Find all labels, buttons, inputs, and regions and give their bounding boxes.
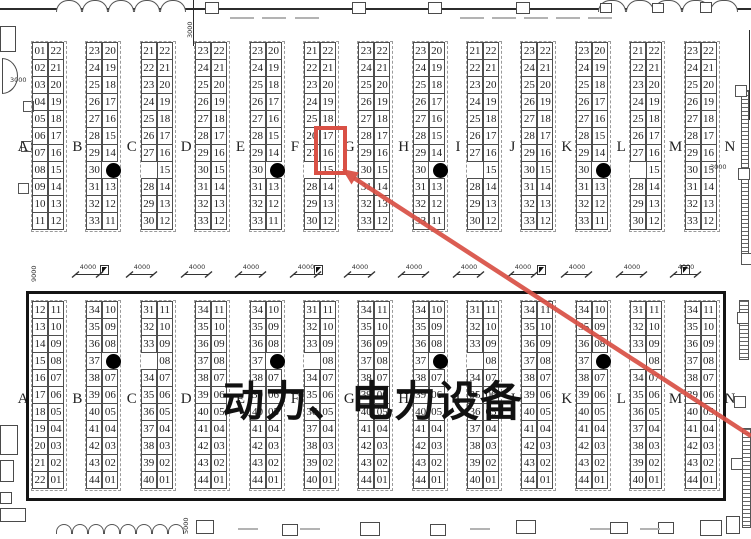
booth-cell: 06 [537, 386, 553, 404]
booth-cell: 23 [195, 42, 211, 60]
booth-cell: 11 [32, 212, 48, 230]
booth-cell: 19 [537, 93, 553, 111]
booth-cell: 06 [48, 386, 64, 404]
booth-cell: 16 [701, 144, 717, 162]
booth-cell: 19 [102, 59, 118, 77]
booth-cell: 19 [32, 420, 48, 438]
booth-cell: 37 [86, 352, 102, 370]
booth-cell: 09 [102, 318, 118, 336]
booth-cell: 19 [211, 93, 227, 111]
booth-cell: 21 [304, 42, 320, 60]
booth-cell: 09 [374, 335, 390, 353]
dimension-label: 3000 [710, 163, 727, 171]
door-arch [134, 0, 160, 12]
booth-cell: 34 [358, 301, 374, 319]
booth-cell: 23 [358, 42, 374, 60]
booth-cell: 31 [304, 301, 320, 319]
booth-cell: 20 [483, 76, 499, 94]
booth-cell: 24 [685, 59, 701, 77]
booth-cell: 43 [250, 454, 266, 472]
door-arch [72, 524, 88, 534]
booth-cell: 20 [592, 42, 608, 60]
wall-detail [0, 492, 12, 504]
booth-cell: 03 [32, 76, 48, 94]
booth-cell: 05 [102, 403, 118, 421]
booth-cell [141, 352, 157, 370]
booth-cell: 15 [48, 161, 64, 179]
booth-cell: 15 [537, 161, 553, 179]
booth-cell [467, 161, 483, 179]
booth-cell: 37 [630, 420, 646, 438]
booth-cell: 28 [576, 127, 592, 145]
booth-cell: 25 [358, 76, 374, 94]
booth-cell: 06 [102, 386, 118, 404]
booth-cell: 40 [195, 403, 211, 421]
booth-cell: 01 [483, 471, 499, 489]
booth-cell: 20 [48, 76, 64, 94]
booth-cell: 42 [413, 437, 429, 455]
door-icon [100, 265, 109, 275]
booth-cell: 18 [48, 110, 64, 128]
booth-cell: 35 [521, 318, 537, 336]
booth-cell: 31 [195, 178, 211, 196]
booth-cell: 17 [483, 127, 499, 145]
wall-detail [0, 508, 26, 522]
booth-cell: 01 [320, 471, 336, 489]
booth-cell: 39 [304, 454, 320, 472]
booth-cell: 10 [646, 318, 662, 336]
booth-cell: 31 [576, 178, 592, 196]
booth-cell: 16 [266, 110, 282, 128]
booth-cell [429, 161, 445, 179]
booth-cell: 37 [141, 420, 157, 438]
highlighted-booth-box [314, 126, 347, 175]
booth-cell: 24 [576, 59, 592, 77]
booth-cell: 19 [483, 93, 499, 111]
booth-cell: 40 [576, 403, 592, 421]
booth-cell: 22 [374, 42, 390, 60]
booth-cell: 20 [374, 76, 390, 94]
booth-cell: 34 [250, 301, 266, 319]
row-letter-n: N [725, 392, 736, 407]
booth-cell: 17 [592, 93, 608, 111]
booth-cell: 21 [157, 59, 173, 77]
wall-detail [295, 17, 319, 19]
booth-cell: 13 [646, 195, 662, 213]
booth-cell: 10 [157, 318, 173, 336]
booth-cell: 21 [211, 59, 227, 77]
booth-cell: 28 [358, 127, 374, 145]
booth-cell: 09 [537, 335, 553, 353]
door-arch [56, 524, 72, 534]
booth-cell: 01 [592, 471, 608, 489]
booth-cell: 30 [358, 161, 374, 179]
booth-cell: 27 [685, 110, 701, 128]
booth-cell: 13 [32, 318, 48, 336]
wall-detail [460, 17, 484, 19]
booth-cell: 02 [592, 454, 608, 472]
booth-cell: 30 [250, 161, 266, 179]
booth-cell: 23 [467, 76, 483, 94]
booth-cell: 22 [537, 42, 553, 60]
ramp-mark: 4000 [451, 262, 487, 279]
booth-cell: 29 [304, 195, 320, 213]
wall-detail [516, 520, 536, 534]
booth-cell: 36 [195, 335, 211, 353]
booth-cell: 21 [320, 59, 336, 77]
row-letter-b: B [72, 392, 82, 407]
booth-cell: 41 [86, 420, 102, 438]
booth-cell: 24 [467, 93, 483, 111]
wall-detail [737, 312, 749, 324]
booth-cell: 24 [304, 93, 320, 111]
booth-column: 0122022103200419051806170716081509141013… [33, 43, 65, 230]
booth-cell: 27 [413, 110, 429, 128]
booth-cell: 25 [141, 110, 157, 128]
svg-text:4000: 4000 [188, 263, 205, 271]
row-letter-i: I [456, 140, 461, 155]
booth-cell: 18 [701, 110, 717, 128]
booth-cell: 22 [32, 471, 48, 489]
booth-cell: 31 [467, 301, 483, 319]
booth-cell: 10 [211, 318, 227, 336]
booth-cell: 12 [320, 212, 336, 230]
wall-detail [360, 522, 380, 536]
booth-column: 2322242125202619271828172916301531143213… [522, 43, 554, 230]
booth-cell: 18 [102, 76, 118, 94]
booth-cell: 23 [413, 42, 429, 60]
booth-cell: 29 [195, 144, 211, 162]
aisle-dot-marker [433, 163, 448, 178]
booth-cell [592, 352, 608, 370]
booth-cell: 30 [195, 161, 211, 179]
wall-detail [230, 17, 254, 19]
ramp-mark: 4000 [505, 262, 541, 279]
booth-cell: 20 [429, 42, 445, 60]
booth-cell: 14 [102, 144, 118, 162]
booth-cell: 07 [646, 369, 662, 387]
booth-cell: 24 [521, 59, 537, 77]
booth-cell: 31 [630, 301, 646, 319]
booth-cell: 09 [701, 335, 717, 353]
booth-cell: 43 [358, 454, 374, 472]
booth-cell: 20 [537, 76, 553, 94]
booth-cell: 21 [467, 42, 483, 60]
booth-cell: 10 [48, 318, 64, 336]
booth-cell: 01 [701, 471, 717, 489]
booth-cell: 28 [685, 127, 701, 145]
booth-cell: 33 [86, 212, 102, 230]
booth-cell: 28 [467, 178, 483, 196]
wall-detail [726, 516, 740, 534]
booth-cell: 06 [32, 127, 48, 145]
booth-cell: 42 [358, 437, 374, 455]
booth-cell: 16 [592, 110, 608, 128]
booth-cell: 36 [358, 335, 374, 353]
booth-cell [102, 352, 118, 370]
booth-cell: 25 [86, 76, 102, 94]
booth-cell: 14 [211, 178, 227, 196]
booth-cell: 44 [521, 471, 537, 489]
booth-cell: 22 [483, 42, 499, 60]
booth-cell: 43 [86, 454, 102, 472]
booth-cell: 03 [429, 437, 445, 455]
booth-cell: 34 [630, 369, 646, 387]
booth-cell: 05 [537, 403, 553, 421]
booth-cell: 17 [211, 127, 227, 145]
booth-cell: 28 [250, 127, 266, 145]
booth-cell: 33 [521, 212, 537, 230]
svg-text:4000: 4000 [80, 263, 97, 271]
booth-cell: 06 [701, 386, 717, 404]
row-letter-d: D [181, 392, 192, 407]
ramp-mark: 4000 [233, 262, 269, 279]
booth-cell: 31 [250, 178, 266, 196]
booth-cell: 44 [685, 471, 701, 489]
svg-text:4000: 4000 [243, 263, 260, 271]
booth-cell: 26 [521, 93, 537, 111]
booth-cell: 09 [266, 318, 282, 336]
booth-cell: 19 [646, 93, 662, 111]
svg-text:4000: 4000 [460, 263, 477, 271]
door-arch [710, 0, 738, 12]
aisle-dot-marker [596, 163, 611, 178]
booth-cell: 04 [102, 420, 118, 438]
booth-column: 1211131014091508160717061805190420032102… [33, 302, 65, 489]
booth-cell: 22 [141, 59, 157, 77]
booth-cell: 29 [521, 144, 537, 162]
booth-cell: 23 [304, 76, 320, 94]
booth-cell: 27 [630, 144, 646, 162]
booth-cell: 01 [32, 42, 48, 60]
booth-cell: 40 [86, 403, 102, 421]
booth-cell: 22 [157, 42, 173, 60]
row-letter-c: C [127, 392, 137, 407]
booth-cell: 07 [32, 144, 48, 162]
booth-cell: 38 [195, 369, 211, 387]
booth-cell: 18 [211, 110, 227, 128]
booth-cell [592, 161, 608, 179]
booth-cell: 10 [32, 195, 48, 213]
wall-detail [742, 428, 751, 528]
wall-detail [749, 30, 750, 120]
booth-cell: 08 [701, 352, 717, 370]
booth-cell: 35 [141, 386, 157, 404]
booth-cell: 40 [521, 403, 537, 421]
booth-cell: 33 [467, 335, 483, 353]
wall-detail [300, 528, 320, 530]
booth-cell: 13 [429, 178, 445, 196]
booth-cell: 11 [320, 301, 336, 319]
booth-cell: 26 [685, 93, 701, 111]
booth-cell: 31 [86, 178, 102, 196]
booth-cell: 15 [646, 161, 662, 179]
booth-cell: 05 [48, 403, 64, 421]
booth-cell: 40 [467, 471, 483, 489]
booth-cell: 39 [521, 386, 537, 404]
booth-cell: 13 [102, 178, 118, 196]
booth-cell: 31 [413, 178, 429, 196]
booth-cell: 15 [374, 161, 390, 179]
booth-cell: 11 [102, 212, 118, 230]
booth-cell: 12 [48, 212, 64, 230]
wall-detail [0, 26, 16, 52]
ramp-mark: 4000 [614, 262, 650, 279]
booth-cell: 20 [266, 42, 282, 60]
booth-cell: 32 [630, 318, 646, 336]
booth-cell: 16 [537, 144, 553, 162]
booth-cell: 01 [157, 471, 173, 489]
booth-cell: 23 [576, 42, 592, 60]
wall-detail [652, 3, 664, 13]
ramp-mark: 4000 [124, 262, 160, 279]
booth-cell: 35 [358, 318, 374, 336]
wall-detail [18, 183, 29, 194]
booth-cell: 12 [266, 195, 282, 213]
booth-cell: 19 [592, 59, 608, 77]
booth-cell: 32 [467, 318, 483, 336]
booth-cell: 41 [521, 420, 537, 438]
booth-cell: 02 [483, 454, 499, 472]
booth-cell: 10 [483, 318, 499, 336]
booth-cell: 30 [521, 161, 537, 179]
door-icon [681, 265, 690, 275]
booth-cell: 14 [701, 178, 717, 196]
booth-column: 2322242125202619271828172916301531143213… [359, 43, 391, 230]
booth-cell: 10 [102, 301, 118, 319]
wall-detail [738, 168, 750, 180]
booth-cell: 28 [521, 127, 537, 145]
booth-cell: 08 [32, 161, 48, 179]
booth-cell: 42 [195, 437, 211, 455]
booth-cell: 20 [157, 76, 173, 94]
aisle-dot-marker [270, 163, 285, 178]
booth-cell: 39 [630, 454, 646, 472]
wall-detail [731, 458, 743, 470]
wall-detail [590, 528, 610, 530]
booth-cell: 36 [630, 403, 646, 421]
booth-cell: 38 [685, 369, 701, 387]
wall-detail [428, 2, 442, 14]
booth-cell: 04 [592, 420, 608, 438]
booth-cell: 21 [483, 59, 499, 77]
booth-cell: 07 [537, 369, 553, 387]
row-letter-m: M [669, 392, 682, 407]
booth-cell: 44 [358, 471, 374, 489]
booth-cell: 14 [320, 178, 336, 196]
booth-cell: 03 [211, 437, 227, 455]
aisle-dot-marker [106, 354, 121, 369]
booth-cell: 05 [646, 403, 662, 421]
booth-cell: 03 [646, 437, 662, 455]
booth-cell: 03 [592, 437, 608, 455]
booth-cell: 29 [467, 195, 483, 213]
booth-cell: 38 [304, 437, 320, 455]
booth-cell: 33 [358, 212, 374, 230]
row-letter-b: B [72, 140, 82, 155]
row-letter-j: J [509, 140, 515, 155]
wall-detail [262, 17, 286, 19]
booth-cell: 28 [413, 127, 429, 145]
booth-cell: 02 [211, 454, 227, 472]
booth-cell: 17 [537, 127, 553, 145]
dimension-label: 9000 [30, 265, 38, 282]
wall-detail [352, 2, 366, 14]
booth-cell: 39 [685, 386, 701, 404]
booth-cell: 38 [630, 437, 646, 455]
hall-category-title: 动力、电力设备 [222, 368, 523, 429]
booth-column: 2320241925182617271628152914303113321233… [577, 43, 609, 230]
booth-cell: 34 [413, 301, 429, 319]
wall-detail [588, 17, 612, 19]
aisle-dot-marker [596, 354, 611, 369]
booth-cell: 14 [374, 178, 390, 196]
booth-cell: 09 [320, 335, 336, 353]
booth-cell: 12 [429, 195, 445, 213]
booth-cell: 21 [374, 59, 390, 77]
door-arch [120, 524, 136, 534]
wall-detail [524, 17, 548, 19]
booth-cell: 44 [250, 471, 266, 489]
booth-cell: 41 [685, 420, 701, 438]
booth-cell: 16 [211, 144, 227, 162]
booth-cell [102, 161, 118, 179]
booth-cell: 20 [701, 76, 717, 94]
booth-cell: 17 [266, 93, 282, 111]
booth-cell: 44 [195, 471, 211, 489]
booth-cell: 35 [685, 318, 701, 336]
booth-cell: 21 [141, 42, 157, 60]
ramp-mark: 4000 [342, 262, 378, 279]
booth-cell: 14 [537, 178, 553, 196]
booth-cell: 11 [592, 212, 608, 230]
booth-cell: 23 [86, 42, 102, 60]
booth-cell: 19 [320, 93, 336, 111]
booth-cell: 11 [537, 301, 553, 319]
row-letter-a: A [18, 392, 29, 407]
booth-column: 3410350936083738073906400541044203430244… [577, 302, 609, 489]
booth-cell: 21 [48, 59, 64, 77]
booth-cell: 38 [576, 369, 592, 387]
booth-cell: 11 [157, 301, 173, 319]
booth-cell: 26 [576, 93, 592, 111]
door-arch [152, 524, 168, 534]
booth-cell: 26 [141, 127, 157, 145]
wall-detail [700, 2, 712, 13]
wall-detail [600, 3, 612, 13]
booth-cell: 18 [592, 76, 608, 94]
booth-cell: 33 [141, 335, 157, 353]
booth-cell: 28 [86, 127, 102, 145]
booth-cell: 16 [646, 144, 662, 162]
booth-cell: 33 [304, 335, 320, 353]
booth-cell: 37 [685, 352, 701, 370]
row-letter-m: M [669, 140, 682, 155]
booth-cell: 04 [32, 93, 48, 111]
booth-cell: 11 [429, 212, 445, 230]
door-arch [104, 524, 120, 534]
booth-cell: 36 [685, 335, 701, 353]
dimension-label: 5000 [182, 517, 190, 534]
booth-cell: 01 [102, 471, 118, 489]
booth-cell: 19 [48, 93, 64, 111]
booth-cell: 16 [157, 144, 173, 162]
booth-cell: 03 [537, 437, 553, 455]
booth-cell: 28 [141, 178, 157, 196]
booth-cell: 11 [211, 301, 227, 319]
ramp-mark: 4000 [396, 262, 432, 279]
booth-cell: 10 [537, 318, 553, 336]
